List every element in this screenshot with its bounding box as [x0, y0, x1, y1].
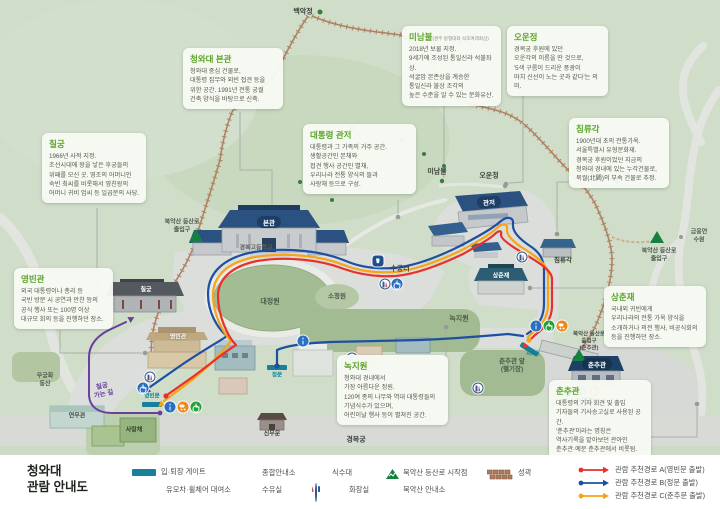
- infobox-body: 2018년 보물 지정. 9세기에 조성된 통일신라 석불좌상. 석굴암 본존상…: [409, 45, 494, 101]
- label-finance-institute: 금융연수원: [689, 230, 710, 245]
- restroom-icon: [473, 383, 484, 394]
- building-label-yeonmugwan: 연무관: [69, 413, 86, 421]
- label-sugungteo: 수궁터: [390, 266, 409, 275]
- infobox-sangchunjae: 상춘재 국내외 귀빈에게 우리나라의 전통 가옥 양식을 소개하거나 의전 행사…: [604, 286, 706, 347]
- entry-exit-gate-bar: [132, 469, 156, 476]
- infobox-title: 춘추관: [556, 385, 644, 397]
- route-b-arrow: [578, 479, 610, 487]
- infobox-title: 영빈관: [21, 273, 106, 285]
- infobox-title: 상춘재: [611, 291, 699, 303]
- legend-route-c: 관람 추천경로 C(춘추문 출발): [578, 491, 705, 501]
- legend-title-line2: 관람 안내도: [27, 480, 88, 496]
- legend-label: 성곽: [518, 468, 531, 478]
- label-baekakjeong: 백악정: [293, 9, 312, 18]
- mountain-trailhead-icon: [386, 468, 399, 480]
- information-icon: [531, 321, 542, 332]
- legend-label: 화장실: [349, 485, 369, 495]
- restroom-icon: [145, 372, 156, 383]
- fortress-wall-icon: [487, 469, 513, 480]
- label-chimnyugak: 침류각: [554, 257, 572, 265]
- restroom-icon: [315, 483, 317, 502]
- label-gyeongbok-highschool: 경복고등학교: [239, 245, 272, 253]
- building-label-sarangchae: 사랑채: [126, 427, 143, 435]
- label-daejeongwon: 대정원: [260, 299, 279, 308]
- legend-label: 종합안내소: [262, 468, 296, 478]
- label-nokjiwon: 녹지원: [449, 316, 468, 325]
- infobox-subtitle: (경주 방형대좌 석조여래좌상): [432, 36, 488, 41]
- infobox-title: 녹지원: [344, 360, 441, 372]
- legend-item-gate: 입·퇴장 게이트: [132, 467, 206, 477]
- legend-item-trailhead: 북악산 등산로 시작점: [386, 467, 467, 479]
- infobox-body: 경복궁 후원에 있던 오운각의 이름을 딴 것으로, '5색 구름이 드리운 풍…: [514, 45, 601, 91]
- legend-item-info: 종합안내소: [245, 467, 296, 479]
- label-ounjeong: 오운정: [479, 173, 498, 182]
- legend-title-line1: 청와대: [27, 464, 88, 480]
- label-trailhead-west: 북악산 등산로 출입구: [165, 220, 200, 235]
- building-label-chilgung: 칠궁: [140, 285, 151, 294]
- legend-item-trailinfo: 북악산 안내소: [386, 484, 445, 496]
- infobox-minambul: 미남불(경주 방형대좌 석조여래좌상) 2018년 보물 지정. 9세기에 조성…: [402, 26, 501, 106]
- infobox-body: 대통령과 그 가족의 거주 공간. 생활공간인 본채와 접견 행사 공간인 별채…: [310, 143, 409, 189]
- label-trailhead-chunchu: 북악산 등산로 출입구 (춘추관): [573, 332, 605, 353]
- label-minambul: 미남불: [427, 169, 446, 178]
- infobox-gwanjeo: 대통령 관저 대통령과 그 가족의 거주 공간. 생활공간인 본채와 접견 행사…: [303, 124, 416, 194]
- building-label-yeongbingwan: 영빈관: [170, 332, 187, 341]
- legend-bar: 청와대 관람 안내도 입·퇴장 게이트 유모차·휠체어 대여소 종합안내소 수유…: [0, 455, 720, 509]
- route-a-arrow: [578, 466, 610, 474]
- gate-label-sihwamun: 시화문: [526, 351, 540, 357]
- infobox-chunchugwan: 춘추관 대통령의 기자 회견 및 출입 기자들의 기사송고실로 사용된 공간. …: [549, 380, 651, 460]
- label-trailhead-east: 북악산 등산로 출입구: [642, 249, 677, 264]
- stroller-rental-icon: [557, 321, 568, 332]
- infobox-chimnyugak: 침류각 1900년대 초의 전통가옥. 서울특별시 유형문화재. 경복궁 후원이…: [569, 118, 669, 188]
- infobox-bongwan: 청와대 본관 청와대 중심 건물로, 대통령 집무와 외빈 접견 등을 위한 공…: [183, 48, 283, 109]
- infobox-body: 국내외 귀빈에게 우리나라의 전통 가옥 양식을 소개하거나 의전 행사, 비공…: [611, 305, 699, 342]
- building-label-sangchunjae: 상춘재: [493, 271, 510, 280]
- legend-title: 청와대 관람 안내도: [27, 464, 88, 495]
- infobox-title: 오운정: [514, 31, 601, 43]
- legend-label: 유모차·휠체어 대여소: [166, 485, 231, 495]
- legend-item-wall: 성곽: [487, 467, 531, 478]
- legend-label: 북악산 안내소: [403, 485, 445, 495]
- infobox-body: 외국 대통령이나 총리 등 국빈 방문 시 공연과 만찬 등의 공식 행사 또는…: [21, 287, 106, 324]
- label-gyeongbokgung: 경복궁: [346, 437, 365, 446]
- legend-label: 관람 추천경로 C(춘추문 출발): [615, 491, 705, 501]
- legend-label: 입·퇴장 게이트: [161, 467, 206, 477]
- legend-route-b: 관람 추천경로 B(정문 출발): [578, 478, 698, 488]
- building-label-gwanjeo: 관저: [477, 195, 502, 208]
- route-c-arrow: [578, 492, 610, 500]
- infobox-body: 청와대 경내에서 가장 아름다운 정원. 120여 종의 나무와 역대 대통령들…: [344, 374, 441, 420]
- label-helipad: 춘추관 앞 (헬기장): [499, 358, 525, 374]
- infobox-title: 청와대 본관: [190, 53, 276, 65]
- information-icon: [165, 402, 176, 413]
- wheelchair-rental-icon: [191, 402, 202, 413]
- gate-label-jeongmun: 정문: [272, 373, 282, 380]
- legend-label: 관람 추천경로 B(정문 출발): [615, 478, 698, 488]
- legend-label: 수유실: [262, 485, 282, 495]
- gate-label-yeongbinmun: 영빈문: [144, 394, 159, 401]
- infobox-nokjiwon: 녹지원 청와대 경내에서 가장 아름다운 정원. 120여 종의 나무와 역대 …: [337, 355, 448, 425]
- legend-route-a: 관람 추천경로 A(영빈문 출발): [578, 465, 705, 475]
- label-mugunghwa-hill: 무궁화 동산: [37, 374, 54, 389]
- legend-item-rental: 유모차·휠체어 대여소: [132, 484, 231, 496]
- infobox-yeongbingwan: 영빈관 외국 대통령이나 총리 등 국빈 방문 시 공연과 만찬 등의 공식 행…: [14, 268, 113, 329]
- legend-item-toilet: 화장실: [315, 484, 369, 496]
- legend-label: 북악산 등산로 시작점: [403, 468, 467, 478]
- infobox-title: 칠궁: [49, 138, 139, 150]
- legend-label: 식수대: [332, 468, 352, 478]
- infobox-body: 1966년 사적 지정. 조선시대에 왕을 낳은 후궁들의 위패를 모신 곳. …: [49, 152, 139, 198]
- legend-item-water: 식수대: [315, 467, 352, 479]
- wheelchair-rental-icon: [544, 321, 555, 332]
- cheongwadae-tour-map: 백악정 북악산 등산로 출입구 북악산 등산로 출입구 북악산 등산로 출입구 …: [0, 0, 720, 509]
- legend-label: 관람 추천경로 A(영빈문 출발): [615, 465, 705, 475]
- infobox-body: 청와대 중심 건물로, 대통령 집무와 외빈 접견 등을 위한 공간. 1991…: [190, 67, 276, 104]
- wheelchair-icon: [392, 279, 403, 290]
- infobox-ounjeong: 오운정 경복궁 후원에 있던 오운각의 이름을 딴 것으로, '5색 구름이 드…: [507, 26, 608, 96]
- restroom-icon: [380, 279, 391, 290]
- label-sojeongwon: 소정원: [328, 293, 346, 301]
- infobox-body: 대통령의 기자 회견 및 출입 기자들의 기사송고실로 사용된 공간. '춘추관…: [556, 399, 644, 455]
- building-label-sinmumun: 신무문: [264, 431, 281, 439]
- drinking-fountain-icon: [373, 256, 384, 267]
- stroller-rental-icon: [178, 402, 189, 413]
- infobox-body: 1900년대 초의 전통가옥. 서울특별시 유형문화재. 경복궁 후원이었던 지…: [576, 137, 662, 183]
- information-icon: [298, 336, 309, 347]
- infobox-chilgung: 칠궁 1966년 사적 지정. 조선시대에 왕을 낳은 후궁들의 위패를 모신 …: [42, 133, 146, 203]
- infobox-title: 침류각: [576, 123, 662, 135]
- legend-item-nursing: 수유실: [245, 484, 282, 496]
- wheelchair-icon: [138, 383, 149, 394]
- building-label-chunchugwan: 춘추관: [582, 358, 612, 370]
- restroom-icon: [517, 252, 528, 263]
- infobox-title: 미남불(경주 방형대좌 석조여래좌상): [409, 31, 494, 43]
- building-label-bongwan: 본관: [257, 216, 281, 228]
- infobox-title: 대통령 관저: [310, 129, 409, 141]
